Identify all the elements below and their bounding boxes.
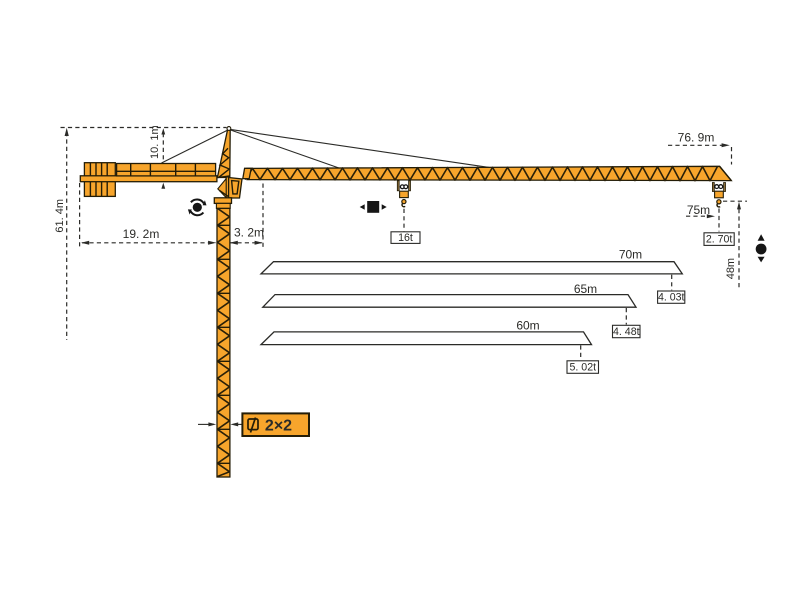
svg-text:70m: 70m [619, 247, 642, 261]
svg-text:2×2: 2×2 [265, 417, 292, 434]
svg-text:10. 1m: 10. 1m [149, 125, 161, 159]
svg-text:19. 2m: 19. 2m [123, 227, 160, 241]
svg-text:61. 4m: 61. 4m [54, 199, 66, 233]
svg-text:48m: 48m [725, 258, 737, 279]
svg-text:4. 03t: 4. 03t [658, 292, 685, 304]
svg-text:75m: 75m [687, 203, 710, 217]
svg-text:5. 02t: 5. 02t [570, 362, 597, 374]
svg-text:2. 70t: 2. 70t [706, 234, 733, 246]
svg-text:16t: 16t [398, 232, 413, 244]
svg-text:65m: 65m [574, 282, 597, 296]
svg-text:3. 2m: 3. 2m [234, 225, 264, 239]
svg-text:60m: 60m [516, 319, 539, 333]
svg-text:4. 48t: 4. 48t [613, 326, 640, 338]
svg-text:76. 9m: 76. 9m [678, 131, 715, 145]
